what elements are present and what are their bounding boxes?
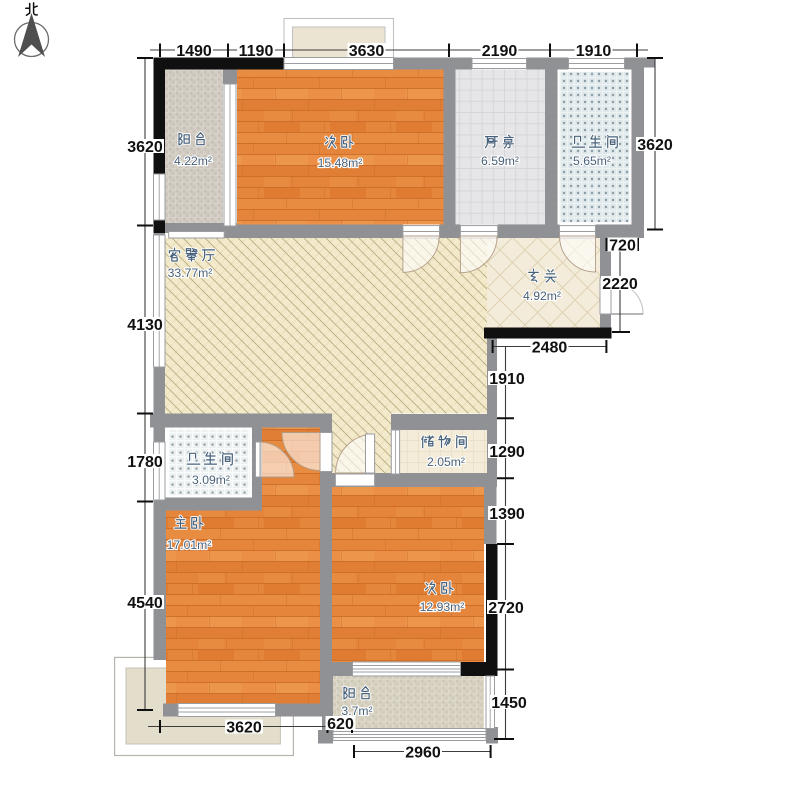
svg-text:4540: 4540 (127, 595, 163, 612)
svg-text:2.05m²: 2.05m² (427, 455, 465, 469)
svg-text:4130: 4130 (127, 317, 163, 334)
svg-text:1390: 1390 (489, 506, 525, 523)
svg-text:3620: 3620 (637, 137, 673, 154)
svg-text:33.77m²: 33.77m² (168, 266, 213, 280)
svg-text:3.09m²: 3.09m² (192, 473, 230, 487)
svg-text:3630: 3630 (349, 43, 385, 60)
svg-text:12.93m²: 12.93m² (420, 600, 465, 614)
svg-text:15.48m²: 15.48m² (318, 156, 363, 170)
svg-text:1450: 1450 (491, 695, 527, 712)
svg-text:5.65m²: 5.65m² (573, 154, 611, 168)
svg-text:620: 620 (327, 716, 354, 733)
svg-text:1910: 1910 (489, 371, 525, 388)
svg-text:17.01m²: 17.01m² (167, 538, 212, 552)
svg-text:4.92m²: 4.92m² (523, 289, 561, 303)
svg-text:6.59m²: 6.59m² (481, 154, 519, 168)
svg-text:2480: 2480 (532, 340, 568, 357)
svg-text:720: 720 (609, 238, 636, 255)
svg-text:2720: 2720 (488, 600, 524, 617)
svg-text:1910: 1910 (576, 43, 612, 60)
svg-text:3620: 3620 (127, 139, 163, 156)
svg-text:1490: 1490 (176, 43, 212, 60)
svg-text:2960: 2960 (405, 745, 441, 762)
svg-text:2190: 2190 (482, 43, 518, 60)
svg-text:3.7m²: 3.7m² (341, 704, 372, 718)
svg-text:3620: 3620 (226, 720, 262, 737)
svg-text:1780: 1780 (127, 454, 163, 471)
svg-text:2220: 2220 (602, 276, 638, 293)
svg-text:1290: 1290 (489, 444, 525, 461)
svg-text:4.22m²: 4.22m² (174, 154, 212, 168)
svg-text:1190: 1190 (239, 43, 274, 60)
